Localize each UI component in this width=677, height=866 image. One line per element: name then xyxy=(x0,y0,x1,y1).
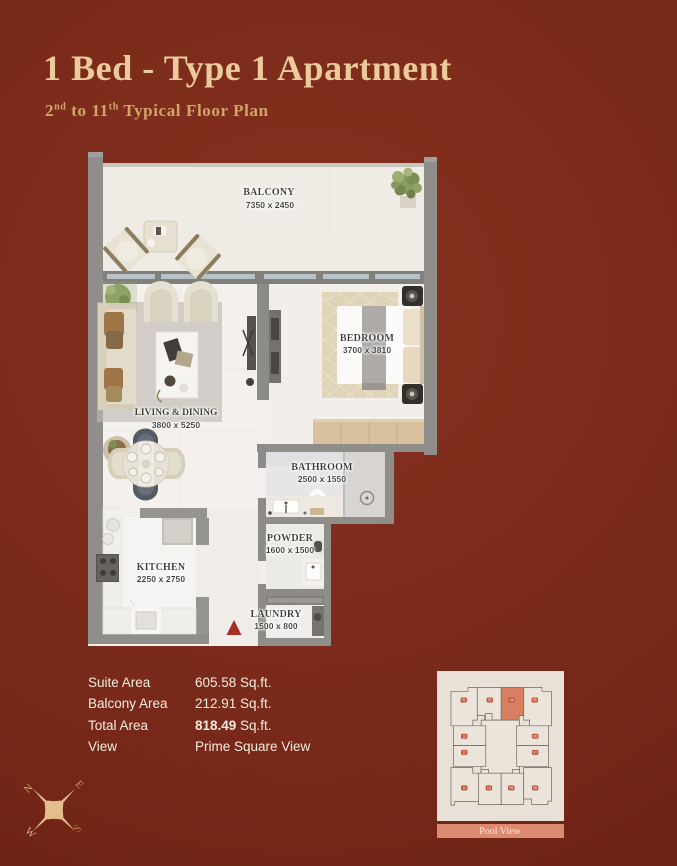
svg-text:3800 x 5250: 3800 x 5250 xyxy=(152,420,201,430)
svg-text:BEDROOM: BEDROOM xyxy=(340,333,395,344)
svg-text:2500 x 1550: 2500 x 1550 xyxy=(298,474,347,484)
svg-text:09: 09 xyxy=(509,786,513,790)
svg-text:13: 13 xyxy=(462,735,466,739)
svg-text:W: W xyxy=(23,826,38,841)
svg-text:2250 x 2750: 2250 x 2750 xyxy=(137,574,186,584)
svg-text:KITCHEN: KITCHEN xyxy=(137,562,186,573)
svg-text:3700 x 3810: 3700 x 3810 xyxy=(343,345,392,355)
svg-text:07: 07 xyxy=(533,751,537,755)
svg-text:POWDER: POWDER xyxy=(267,533,314,544)
svg-text:BATHROOM: BATHROOM xyxy=(291,462,353,473)
svg-text:03: 03 xyxy=(488,698,492,702)
svg-text:04: 04 xyxy=(510,698,514,702)
svg-text:12: 12 xyxy=(462,751,466,755)
svg-text:BALCONY: BALCONY xyxy=(243,187,295,198)
svg-text:05: 05 xyxy=(533,698,537,702)
svg-text:N: N xyxy=(22,782,35,795)
svg-text:S: S xyxy=(72,823,84,835)
svg-text:7350 x 2450: 7350 x 2450 xyxy=(246,200,295,210)
svg-text:1600 x 1500: 1600 x 1500 xyxy=(266,545,315,555)
svg-text:11: 11 xyxy=(462,786,466,790)
svg-text:08: 08 xyxy=(533,786,537,790)
svg-text:10: 10 xyxy=(487,786,491,790)
svg-text:1500 x 800: 1500 x 800 xyxy=(254,621,298,631)
svg-text:LIVING & DINING: LIVING & DINING xyxy=(135,408,218,418)
svg-text:02: 02 xyxy=(462,698,466,702)
svg-text:LAUNDRY: LAUNDRY xyxy=(250,609,302,620)
svg-text:Pool View: Pool View xyxy=(479,826,521,837)
svg-text:06: 06 xyxy=(533,735,537,739)
